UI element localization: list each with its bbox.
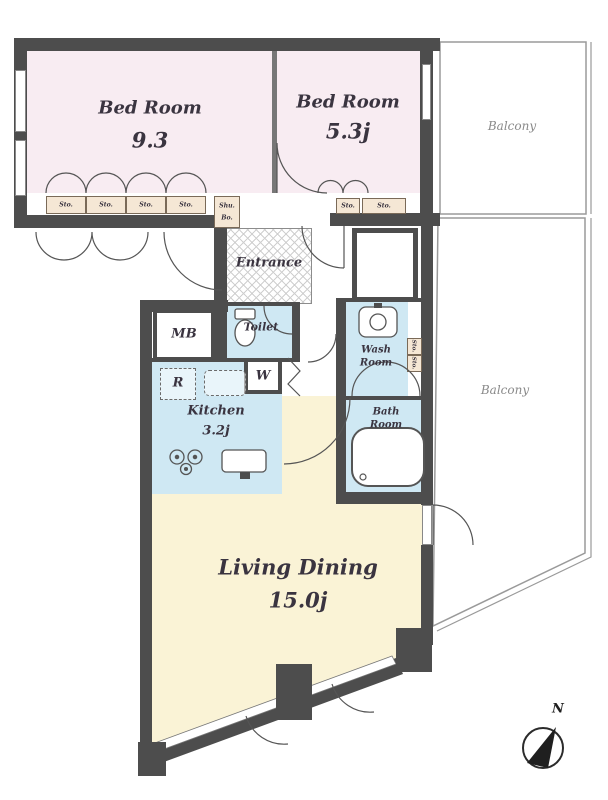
living-dining-area: 15.0j — [269, 588, 328, 613]
storage-label: Sto. — [179, 202, 193, 209]
bedroom1-area: 9.3 — [132, 128, 169, 153]
bathroom-label-line1: Bath — [373, 407, 400, 418]
storage-label: Sto. — [99, 202, 113, 209]
washbasin-icon — [359, 303, 397, 337]
kitchen-label: Kitchen — [187, 404, 244, 419]
sink-icon — [222, 450, 266, 479]
living-dining-label: Living Dining — [218, 555, 378, 580]
washroom-label-line1: Wash — [361, 345, 391, 356]
bedroom2-area: 5.3j — [326, 119, 370, 144]
storage-label: Sto. — [411, 340, 417, 353]
bathroom-label-line2: Room — [370, 420, 402, 431]
storage-label: Sto. — [139, 202, 153, 209]
storage-label: Sto. — [377, 203, 391, 210]
folding-door-icon — [288, 358, 300, 396]
toilet-label: Toilet — [244, 321, 279, 334]
door-swing-arcs — [164, 143, 473, 744]
shoe-box-label-line2: Bo. — [221, 215, 232, 222]
bedroom1-label: Bed Room — [98, 98, 202, 119]
storage-label: Sto. — [59, 202, 73, 209]
meter-box-label: MB — [171, 327, 196, 342]
floor-plan: Bed Room 9.3 Bed Room 5.3j Balcony Balco… — [0, 0, 608, 800]
balcony-side-label: Balcony — [481, 383, 529, 397]
refrigerator-label: R — [173, 376, 184, 391]
bathtub-icon — [352, 428, 424, 486]
closet-door-arcs — [36, 173, 368, 260]
compass-icon — [523, 727, 563, 768]
washroom-label-line2: Room — [360, 358, 392, 369]
stove-icon — [170, 450, 202, 475]
storage-label: Sto. — [411, 357, 417, 370]
kitchen-area: 3.2j — [202, 424, 229, 439]
entrance-label: Entrance — [236, 256, 302, 271]
storage-label: Sto. — [341, 203, 355, 210]
balcony-top-label: Balcony — [488, 119, 536, 133]
bedroom2-label: Bed Room — [296, 92, 400, 113]
washer-label: W — [256, 369, 271, 384]
compass-north-label: N — [552, 702, 564, 717]
shoe-box-label-line1: Shu. — [219, 203, 235, 210]
